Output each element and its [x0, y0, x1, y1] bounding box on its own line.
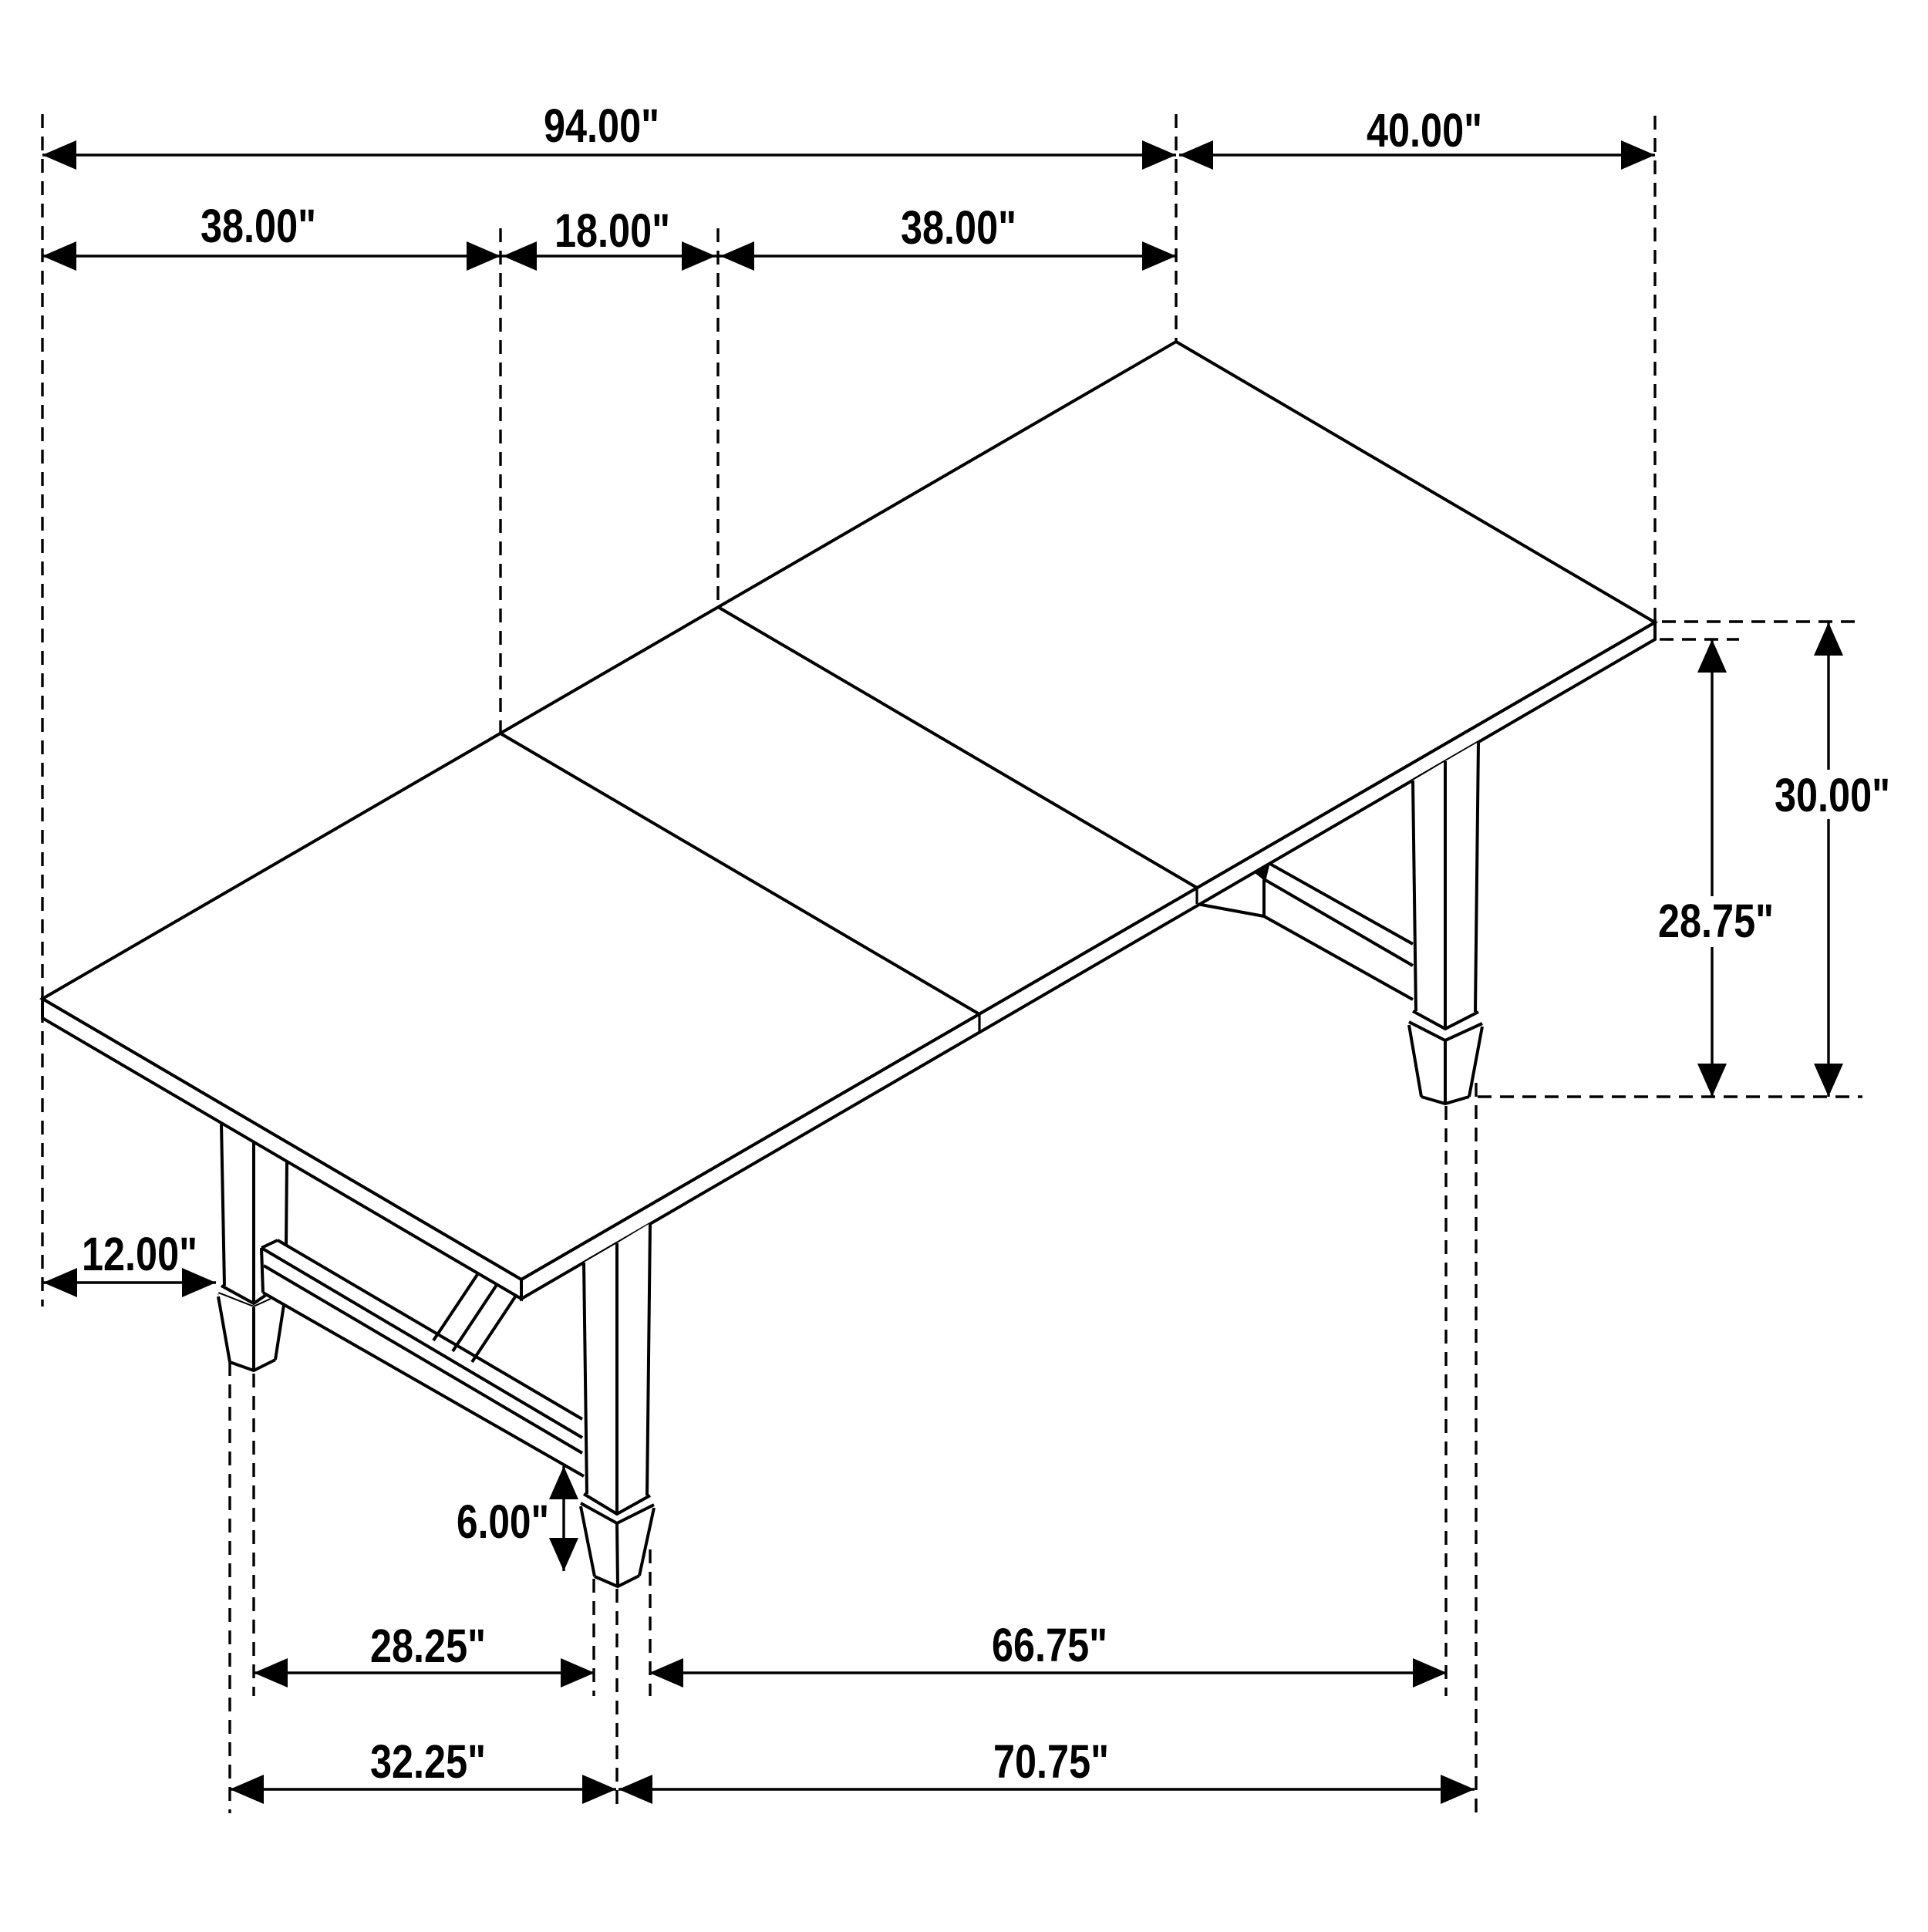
svg-text:28.25": 28.25" — [370, 1620, 486, 1672]
svg-text:28.75": 28.75" — [1658, 895, 1774, 947]
svg-text:32.25": 32.25" — [370, 1735, 486, 1788]
svg-text:70.75": 70.75" — [993, 1735, 1109, 1788]
svg-text:40.00": 40.00" — [1367, 104, 1482, 157]
svg-text:38.00": 38.00" — [201, 200, 316, 252]
svg-text:12.00": 12.00" — [82, 1228, 197, 1280]
svg-text:94.00": 94.00" — [544, 99, 659, 152]
svg-text:6.00": 6.00" — [457, 1495, 549, 1548]
svg-text:38.00": 38.00" — [901, 201, 1016, 254]
svg-text:18.00": 18.00" — [554, 204, 670, 257]
svg-text:66.75": 66.75" — [992, 1619, 1107, 1671]
svg-text:30.00": 30.00" — [1775, 769, 1890, 821]
